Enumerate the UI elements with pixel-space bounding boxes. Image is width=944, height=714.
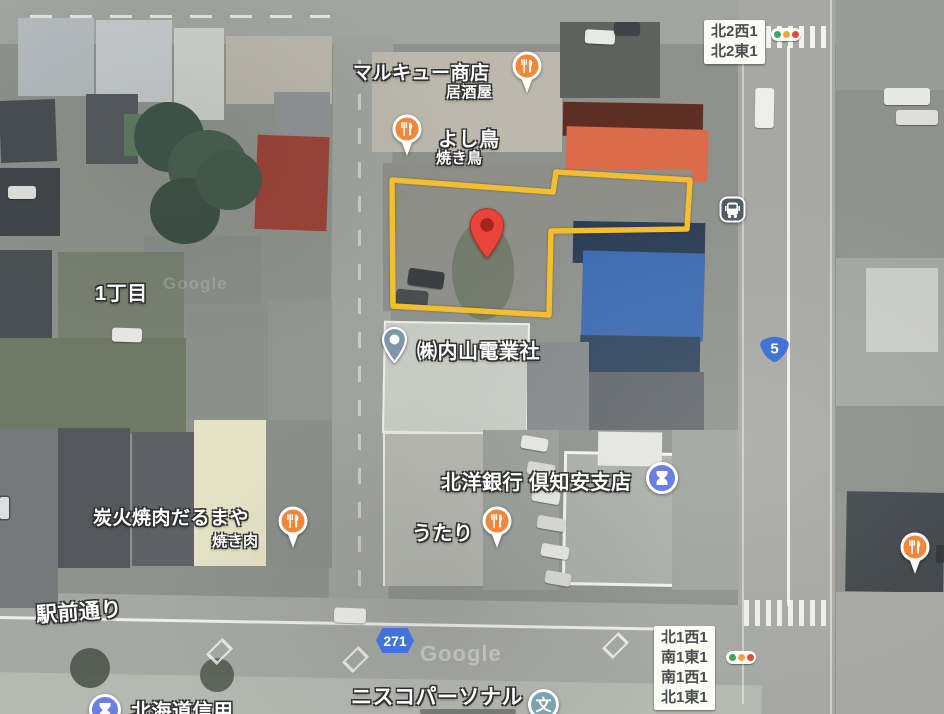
building [96, 20, 172, 102]
vacant-lot [0, 338, 186, 434]
building [268, 300, 332, 426]
clipped-label-fragment [936, 545, 944, 563]
building [836, 0, 944, 90]
truck [755, 88, 775, 128]
restaurant-pin-marukyu[interactable] [509, 51, 545, 96]
poi-label-uchiyama[interactable]: ㈱内山電業社 [417, 335, 540, 364]
street-dash [358, 60, 361, 590]
building [836, 406, 944, 492]
bank-icon-hokuyo[interactable] [644, 460, 680, 496]
intersection-line: 北1東1 [661, 688, 708, 708]
intersection-line: 北2東1 [711, 42, 758, 62]
building-redbrown-roof [254, 135, 329, 231]
restaurant-pin-utari[interactable] [479, 506, 515, 551]
route-shield-5: 5 [759, 335, 790, 363]
building-dark [0, 250, 52, 338]
route-shield-271: 271 [376, 628, 414, 653]
parking-lot [672, 430, 738, 590]
svg-text:文: 文 [535, 696, 552, 714]
restaurant-pin-right-edge[interactable] [897, 532, 933, 577]
street-label-ekimae-dori: 駅前通り [35, 593, 123, 629]
bus-stop-icon[interactable] [719, 196, 746, 223]
center-dash [30, 15, 330, 18]
building [383, 432, 485, 586]
traffic-light-icon [726, 651, 756, 664]
district-label: 1丁目 [95, 277, 148, 306]
building [186, 312, 268, 420]
road-corner [836, 592, 944, 714]
poi-label-hokkaido-shinkin[interactable]: 北海道信用 [131, 695, 234, 714]
building [274, 92, 330, 138]
tree [196, 150, 262, 210]
car [112, 327, 142, 342]
building-dark [0, 168, 60, 236]
intersection-line: 北1西1 [661, 628, 708, 648]
building [18, 18, 94, 96]
poi-label-utari[interactable]: うたり [412, 517, 474, 546]
tree [70, 648, 110, 688]
svg-text:5: 5 [770, 341, 778, 358]
clipped-label-fragment [0, 497, 9, 519]
intersection-label-top: 北2西1 北2東1 [704, 20, 765, 64]
bank-icon-hokkaido-shinkin[interactable] [87, 692, 123, 714]
map-canvas[interactable]: Google Google 北2西1 北2東1 北1西1 南1東1 南1西1 北… [0, 0, 944, 714]
edge-line [830, 0, 832, 714]
poi-label-nisco[interactable]: ニスコパーソナル [351, 681, 523, 711]
business-pin-uchiyama[interactable] [381, 327, 408, 363]
car [334, 607, 367, 623]
restaurant-pin-darumaya[interactable] [275, 506, 311, 551]
building-dark [58, 428, 130, 568]
car [585, 29, 616, 45]
poi-category-darumaya: 焼き肉 [212, 530, 259, 551]
school-icon-nisco[interactable]: 文 [526, 687, 561, 714]
intersection-line: 南1西1 [661, 668, 708, 688]
intersection-label-bottom: 北1西1 南1東1 南1西1 北1東1 [654, 626, 715, 710]
intersection-line: 北2西1 [711, 22, 758, 42]
poi-label-darumaya[interactable]: 炭火焼肉だるまや [93, 503, 249, 530]
building-dark [0, 99, 57, 163]
crosswalk [744, 600, 830, 626]
building-blue-roof [580, 335, 701, 375]
clipped-label-fragment [420, 709, 516, 714]
parcel-outline-polygon [378, 158, 698, 323]
lane-line [787, 46, 790, 606]
poi-category-yoshitori: 焼き鳥 [436, 147, 483, 168]
traffic-light-icon [771, 28, 801, 41]
selected-place-marker[interactable] [468, 206, 506, 262]
building-white [866, 268, 938, 352]
building [842, 140, 944, 258]
car [614, 22, 640, 35]
intersection-line: 南1東1 [661, 648, 708, 668]
building-dark [132, 432, 196, 566]
car [8, 186, 36, 199]
poi-label-hokuyo-bank[interactable]: 北洋銀行 倶知安支店 [441, 466, 632, 495]
poi-category-marukyu: 居酒屋 [446, 81, 493, 102]
car [884, 88, 930, 105]
restaurant-pin-yoshitori[interactable] [389, 114, 425, 159]
car [896, 110, 938, 125]
